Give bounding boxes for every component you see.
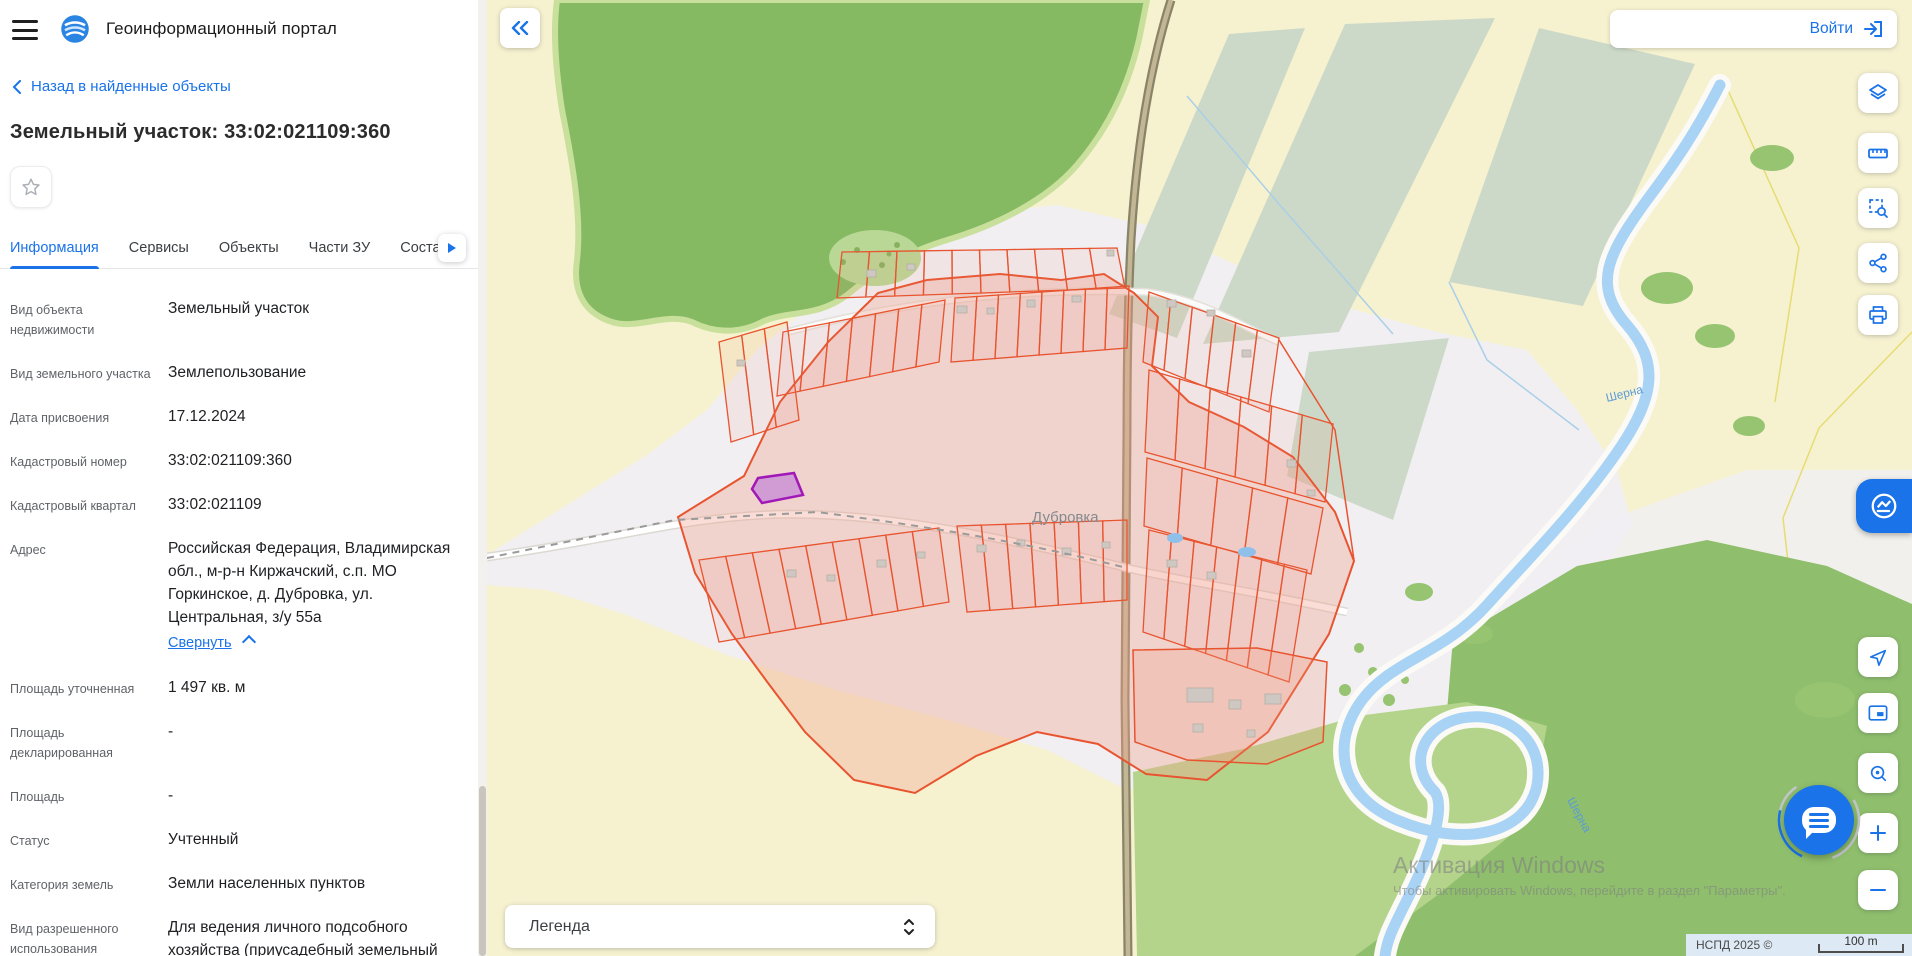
- field-value: 1 497 кв. м: [168, 676, 464, 699]
- tab-scroll-right-button[interactable]: [438, 234, 466, 262]
- field-label: Вид объекта недвижимости: [10, 297, 160, 340]
- search-on-map-button[interactable]: [1858, 753, 1898, 793]
- my-location-button[interactable]: [1858, 637, 1898, 677]
- legend-label: Легенда: [529, 918, 590, 936]
- navigate-arrow-icon: [1868, 647, 1888, 667]
- scale-bar: 100 m: [1818, 936, 1904, 953]
- share-button[interactable]: [1858, 243, 1898, 283]
- favorite-star-icon[interactable]: [10, 166, 52, 208]
- field-value: Для ведения личного подсобного хозяйства…: [168, 916, 464, 956]
- ruler-icon: [1867, 142, 1889, 164]
- triangle-right-icon: [447, 242, 457, 254]
- chat-widget[interactable]: [1775, 776, 1863, 864]
- tab-4[interactable]: Части ЗУ: [309, 230, 371, 268]
- field-value: Российская Федерация, Владимирская обл.,…: [168, 537, 464, 655]
- field-value: 17.12.2024: [168, 405, 464, 428]
- picture-in-picture-icon: [1868, 704, 1888, 722]
- login-button[interactable]: Войти: [1610, 10, 1897, 48]
- field-label: Площадь: [10, 784, 160, 807]
- layers-icon: [1867, 82, 1889, 104]
- info-row: Дата присвоения17.12.2024: [10, 405, 464, 428]
- field-label: Площадь уточненная: [10, 676, 160, 699]
- back-link[interactable]: Назад в найденные объекты: [12, 78, 478, 95]
- locate-search-icon: [1868, 763, 1888, 783]
- info-row: Площадь уточненная1 497 кв. м: [10, 676, 464, 699]
- collapse-address-link[interactable]: Свернуть: [168, 632, 232, 655]
- field-label: Вид разрешенного использования: [10, 916, 160, 956]
- menu-icon[interactable]: [12, 20, 38, 40]
- sidebar-collapse-button[interactable]: [500, 8, 540, 48]
- field-label: Вид земельного участка: [10, 361, 160, 384]
- zoom-out-button[interactable]: [1858, 870, 1898, 910]
- info-row: СтатусУчтенный: [10, 828, 464, 851]
- info-row: Категория земельЗемли населенных пунктов: [10, 872, 464, 895]
- sidebar: Геоинформационный портал Назад в найденн…: [0, 0, 487, 956]
- minus-icon: [1870, 882, 1886, 898]
- plus-icon: [1870, 825, 1886, 841]
- minimap-button[interactable]: [1858, 693, 1898, 733]
- field-label: Категория земель: [10, 872, 160, 895]
- tab-3[interactable]: Объекты: [219, 230, 279, 268]
- scrollbar-thumb[interactable]: [479, 786, 486, 956]
- login-icon: [1863, 20, 1883, 38]
- map-image: Дубровка Шерна Шерна: [487, 0, 1912, 956]
- field-value: Землепользование: [168, 361, 464, 384]
- nspd-panel-button[interactable]: [1856, 479, 1912, 533]
- info-row: Кадастровый квартал33:02:021109: [10, 493, 464, 516]
- place-label: Дубровка: [1032, 509, 1099, 526]
- info-row: Площадь декларированная-: [10, 720, 464, 763]
- field-value: -: [168, 720, 464, 763]
- field-label: Кадастровый квартал: [10, 493, 160, 516]
- info-row: Вид объекта недвижимостиЗемельный участо…: [10, 297, 464, 340]
- field-value: Земельный участок: [168, 297, 464, 340]
- attribution-text: НСПД 2025 ©: [1696, 938, 1772, 952]
- field-label: Адрес: [10, 537, 160, 655]
- share-icon: [1867, 252, 1889, 274]
- tab-bar: ИнформацияСервисыОбъектыЧасти ЗУСоста: [0, 230, 478, 269]
- chevron-up-icon: [242, 635, 256, 649]
- sidebar-header: Геоинформационный портал: [0, 0, 478, 44]
- page-title: Земельный участок: 33:02:021109:360: [10, 121, 478, 144]
- info-row: Вид земельного участкаЗемлепользование: [10, 361, 464, 384]
- field-value: Учтенный: [168, 828, 464, 851]
- info-row: Вид разрешенного использованияДля ведени…: [10, 916, 464, 956]
- nspd-logo-icon: [1869, 491, 1899, 521]
- print-icon: [1867, 304, 1889, 326]
- tab-5[interactable]: Соста: [400, 230, 440, 268]
- double-chevron-left-icon: [511, 21, 529, 35]
- layers-button[interactable]: [1858, 73, 1898, 113]
- app-title: Геоинформационный портал: [106, 19, 337, 39]
- field-label: Дата присвоения: [10, 405, 160, 428]
- field-value: Земли населенных пунктов: [168, 872, 464, 895]
- info-row: АдресРоссийская Федерация, Владимирская …: [10, 537, 464, 655]
- print-button[interactable]: [1858, 295, 1898, 335]
- field-label: Статус: [10, 828, 160, 851]
- info-row: Кадастровый номер33:02:021109:360: [10, 449, 464, 472]
- ruler-button[interactable]: [1858, 133, 1898, 173]
- chat-bubble-icon: [1802, 807, 1836, 833]
- info-row: Площадь-: [10, 784, 464, 807]
- field-value: 33:02:021109:360: [168, 449, 464, 472]
- area-search-icon: [1867, 197, 1889, 219]
- map-attribution: НСПД 2025 © 100 m: [1686, 934, 1912, 956]
- field-label: Площадь декларированная: [10, 720, 160, 763]
- chat-button[interactable]: [1784, 785, 1854, 855]
- app-logo-icon: [60, 14, 90, 44]
- chevron-left-icon: [12, 80, 21, 94]
- field-value: 33:02:021109: [168, 493, 464, 516]
- field-value: -: [168, 784, 464, 807]
- area-search-button[interactable]: [1858, 188, 1898, 228]
- zoom-in-button[interactable]: [1858, 813, 1898, 853]
- legend-panel[interactable]: Легенда: [505, 905, 935, 948]
- map-canvas[interactable]: Дубровка Шерна Шерна Войти Легенда: [487, 0, 1912, 956]
- tab-1[interactable]: Информация: [10, 230, 99, 268]
- tab-2[interactable]: Сервисы: [129, 230, 189, 268]
- field-label: Кадастровый номер: [10, 449, 160, 472]
- sidebar-scrollbar[interactable]: [478, 0, 487, 956]
- info-fields: Вид объекта недвижимостиЗемельный участо…: [0, 269, 478, 956]
- expand-collapse-icon: [903, 918, 915, 936]
